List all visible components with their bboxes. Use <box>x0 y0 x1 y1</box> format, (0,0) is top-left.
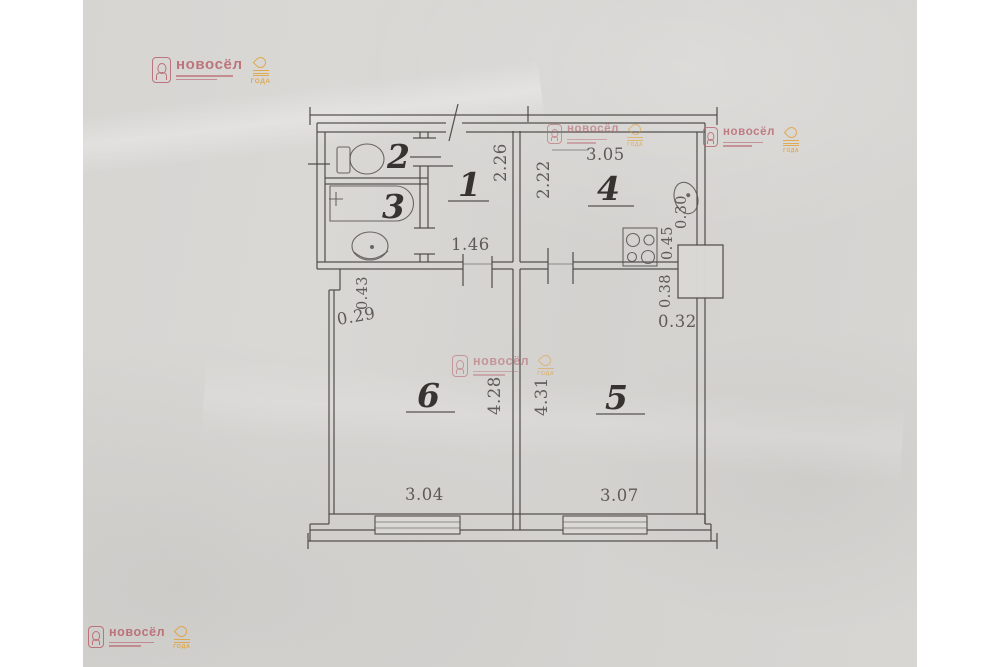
faucet-cross-icon <box>329 192 343 206</box>
watermark-brand: новосёл <box>176 57 243 72</box>
dim-room6-depth: 4.28 <box>485 376 504 415</box>
window-room6 <box>375 516 460 534</box>
stove-icon <box>623 228 657 266</box>
dim-hall-width: 1.46 <box>451 235 490 254</box>
dim-kitchen-depth: 2.22 <box>534 160 553 199</box>
novosel-logo-icon <box>452 355 468 377</box>
inner-walls <box>308 131 678 530</box>
dim-seg-029: 0.29 <box>335 303 376 328</box>
toilet-icon <box>337 144 384 174</box>
novosel-logo-icon <box>152 57 171 83</box>
bathroom-sink-icon <box>352 232 388 260</box>
bottom-dimension-line <box>308 533 717 549</box>
entrance-door-mark <box>449 104 458 141</box>
watermark-award-badge: ГОДА <box>537 355 554 377</box>
floor-plan-drawing: 1 2 3 4 5 6 2.26 1.46 2.22 3.05 4.28 3.0… <box>0 0 1000 667</box>
watermark-top-right: новосёл ГОДА <box>703 127 799 154</box>
watermark-badge-text: ГОДА <box>251 79 271 86</box>
watermark-brand: новосёл <box>723 127 775 139</box>
screenshot-floorplan-photo: { "watermark": { "brand": "новосёл", "ba… <box>0 0 1000 667</box>
room-6-label: 6 <box>417 376 440 415</box>
laurel-icon <box>253 55 269 71</box>
laurel-icon <box>174 624 190 640</box>
watermark-tagline <box>109 642 161 647</box>
dim-seg-032: 0.32 <box>658 312 697 331</box>
dim-seg-038: 0.38 <box>658 274 674 308</box>
watermark-tagline <box>473 371 525 376</box>
novosel-logo-icon <box>703 127 718 147</box>
watermark-bottom-left: новосёл ГОДА <box>88 626 190 651</box>
room-2-label: 2 <box>386 137 410 176</box>
room-4-label: 4 <box>597 169 620 208</box>
watermark-tagline <box>723 142 769 147</box>
dim-room5-depth: 4.31 <box>532 377 551 416</box>
laurel-icon <box>627 122 643 138</box>
watermark-brand: новосёл <box>567 124 619 136</box>
laurel-icon <box>783 125 799 141</box>
watermark-award-badge: ГОДА <box>173 626 190 651</box>
novosel-logo-icon <box>547 124 562 144</box>
watermark-tagline <box>567 139 613 144</box>
watermark-award-badge: ГОДА <box>783 127 799 154</box>
top-dimension-line <box>310 106 717 125</box>
watermark-center: новосёл ГОДА <box>452 355 554 378</box>
dim-seg-045: 0.45 <box>660 226 676 260</box>
laurel-icon <box>538 353 554 369</box>
dim-room6-width: 3.04 <box>405 485 444 504</box>
watermark-top-middle: новосёл ГОДА <box>547 124 643 148</box>
watermark-brand: новосёл <box>109 626 165 639</box>
room-3-label: 3 <box>382 187 405 226</box>
dim-hall-depth: 2.26 <box>491 143 510 182</box>
watermark-brand: новосёл <box>473 355 529 368</box>
vent-shaft-block <box>678 245 723 298</box>
watermark-tagline <box>176 75 242 80</box>
watermark-badge-text: ГОДА <box>173 645 190 651</box>
watermark-award-badge: ГОДА <box>251 57 271 85</box>
watermark-badge-text: ГОДА <box>537 372 554 378</box>
novosel-logo-icon <box>88 626 104 648</box>
watermark-top-left: новосёл ГОДА <box>152 57 271 85</box>
watermark-badge-text: ГОДА <box>627 143 643 148</box>
window-room5 <box>563 516 647 534</box>
watermark-award-badge: ГОДА <box>627 124 643 148</box>
room-1-label: 1 <box>458 165 481 204</box>
dim-seg-030: 0.30 <box>674 195 690 229</box>
watermark-badge-text: ГОДА <box>783 149 799 154</box>
dim-room5-width: 3.07 <box>600 486 639 505</box>
room-5-label: 5 <box>605 378 628 417</box>
